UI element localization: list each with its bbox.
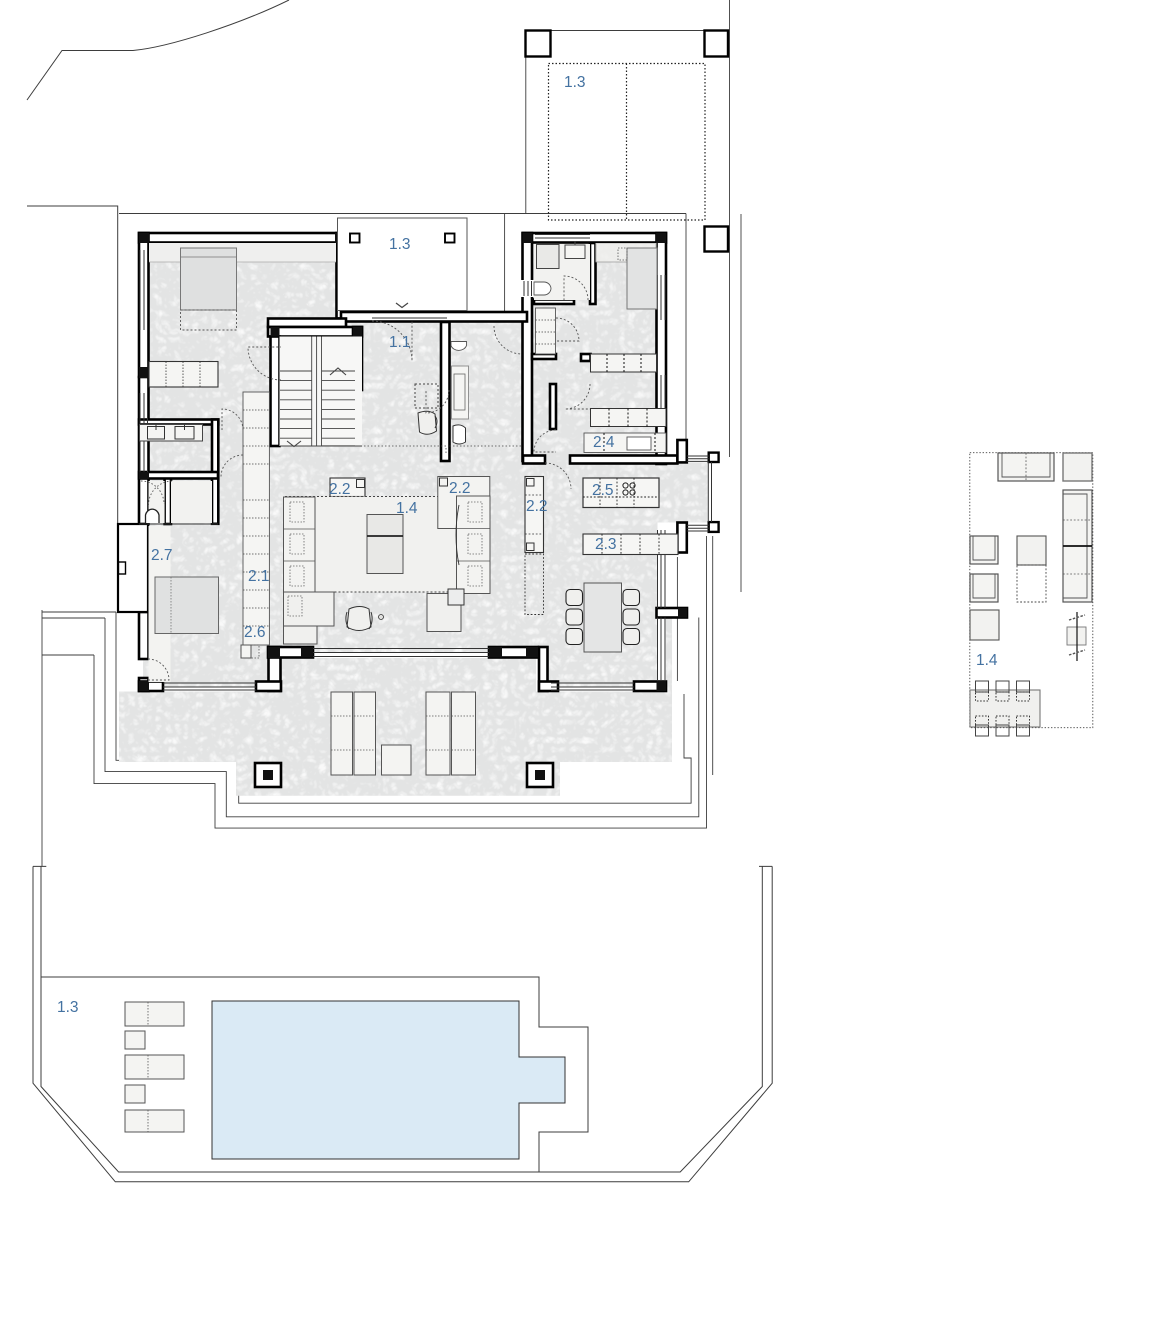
svg-text:1.4: 1.4	[976, 652, 998, 669]
svg-text:1.1: 1.1	[389, 334, 411, 351]
svg-text:1.3: 1.3	[564, 74, 586, 91]
svg-text:1.3: 1.3	[57, 999, 79, 1016]
svg-text:2.2: 2.2	[449, 480, 471, 497]
svg-text:2.1: 2.1	[248, 568, 270, 585]
svg-text:2.7: 2.7	[151, 547, 173, 564]
svg-text:2.2: 2.2	[329, 481, 351, 498]
svg-text:2.4: 2.4	[593, 434, 615, 451]
svg-text:1.3: 1.3	[389, 236, 411, 253]
svg-text:2.3: 2.3	[595, 536, 617, 553]
svg-text:2.2: 2.2	[526, 498, 548, 515]
svg-text:2.6: 2.6	[244, 624, 266, 641]
svg-text:2.5: 2.5	[592, 482, 614, 499]
svg-text:1.4: 1.4	[396, 500, 418, 517]
